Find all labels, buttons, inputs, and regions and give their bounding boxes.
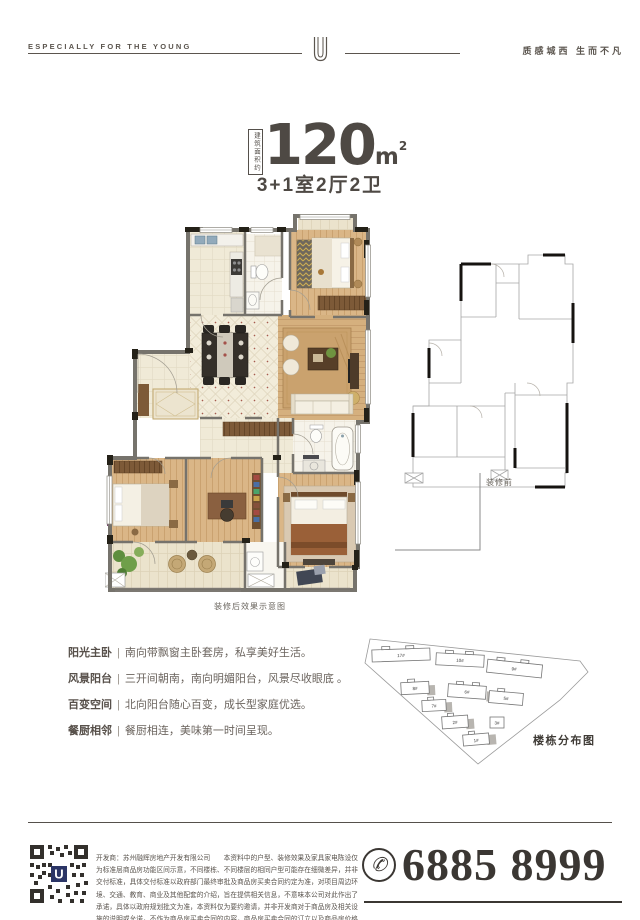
site-map-caption: 楼栋分布图 bbox=[533, 732, 596, 748]
feature-desc: 北向阳台随心百变，成长型家庭优选。 bbox=[125, 699, 312, 711]
logo-u-icon bbox=[312, 36, 329, 63]
feature-desc: 南向带飘窗主卧套房，私享美好生活。 bbox=[125, 647, 312, 659]
feature-desc: 三开间朝南，南向明媚阳台，风景尽收眼底 。 bbox=[125, 673, 348, 685]
phone-underline bbox=[364, 901, 622, 903]
building-label: 3# bbox=[494, 721, 500, 726]
area-number: 120 bbox=[264, 113, 375, 178]
qr-code: U bbox=[30, 845, 88, 903]
area-label-box: 建筑面积约 bbox=[248, 129, 263, 175]
poster-page: ESPECIALLY FOR THE YOUNG 质感城西 生而不凡 建筑面积约… bbox=[0, 0, 640, 920]
feature-separator: | bbox=[112, 699, 125, 711]
before-plan-caption: 装修前 bbox=[486, 477, 513, 488]
area-unit: m bbox=[375, 144, 399, 170]
footer-divider bbox=[28, 822, 612, 823]
area-value: 120m2 bbox=[264, 118, 405, 174]
disclaimer-text: 开发商：苏州融辉房地产开发有限公司 本资料中的户型、装修效果及家具家电陈设仅为标… bbox=[96, 853, 358, 920]
header-divider-right bbox=[345, 53, 460, 54]
feature-list: 阳光主卧|南向带飘窗主卧套房，私享美好生活。 风景阳台|三开间朝南，南向明媚阳台… bbox=[68, 644, 348, 748]
feature-separator: | bbox=[112, 673, 125, 685]
feature-separator: | bbox=[112, 725, 125, 737]
header-slogan-en: ESPECIALLY FOR THE YOUNG bbox=[28, 42, 192, 51]
qr-center-logo: U bbox=[54, 867, 63, 882]
feature-title: 餐厨相邻 bbox=[68, 725, 112, 737]
site-map: 17# 10# 9# 8# 6# 5# bbox=[350, 632, 615, 772]
feature-row: 百变空间|北向阳台随心百变，成长型家庭优选。 bbox=[68, 696, 348, 722]
area-label: 建筑面积约 bbox=[251, 132, 261, 172]
feature-separator: | bbox=[112, 647, 125, 659]
phone-icon: ✆ bbox=[362, 848, 396, 882]
layout-subtitle: 3+1室2厅2卫 bbox=[200, 170, 440, 197]
building-label: 7# bbox=[431, 703, 437, 708]
before-plan-leader-line bbox=[395, 473, 480, 550]
feature-row: 阳光主卧|南向带飘窗主卧套房，私享美好生活。 bbox=[68, 644, 348, 670]
feature-title: 百变空间 bbox=[68, 699, 112, 711]
floorplan-after bbox=[105, 212, 395, 607]
feature-row: 餐厨相邻|餐厨相连，美味第一时间呈现。 bbox=[68, 722, 348, 748]
floorplan-before bbox=[395, 243, 610, 563]
building-label: 6# bbox=[464, 689, 470, 694]
feature-row: 风景阳台|三开间朝南，南向明媚阳台，风景尽收眼底 。 bbox=[68, 670, 348, 696]
area-unit-sup: 2 bbox=[399, 139, 405, 153]
feature-title: 阳光主卧 bbox=[68, 647, 112, 659]
building-label: 17# bbox=[397, 653, 405, 658]
building-label: 10# bbox=[456, 658, 464, 663]
phone-number: 6885 8999 bbox=[402, 842, 607, 888]
header-slogan-cn: 质感城西 生而不凡 bbox=[522, 44, 624, 57]
feature-desc: 餐厨相连，美味第一时间呈现。 bbox=[125, 725, 279, 737]
after-plan-caption: 装修后效果示意图 bbox=[180, 601, 320, 612]
before-plan-bearing-walls bbox=[413, 255, 573, 487]
building-label: 1# bbox=[473, 738, 479, 743]
building-label: 8# bbox=[412, 686, 418, 691]
feature-title: 风景阳台 bbox=[68, 673, 112, 685]
building-label: 2# bbox=[452, 720, 458, 725]
header-divider-left bbox=[28, 53, 302, 54]
phone-block: ✆ 6885 8999 bbox=[362, 842, 624, 888]
building-label: 5# bbox=[503, 696, 509, 701]
